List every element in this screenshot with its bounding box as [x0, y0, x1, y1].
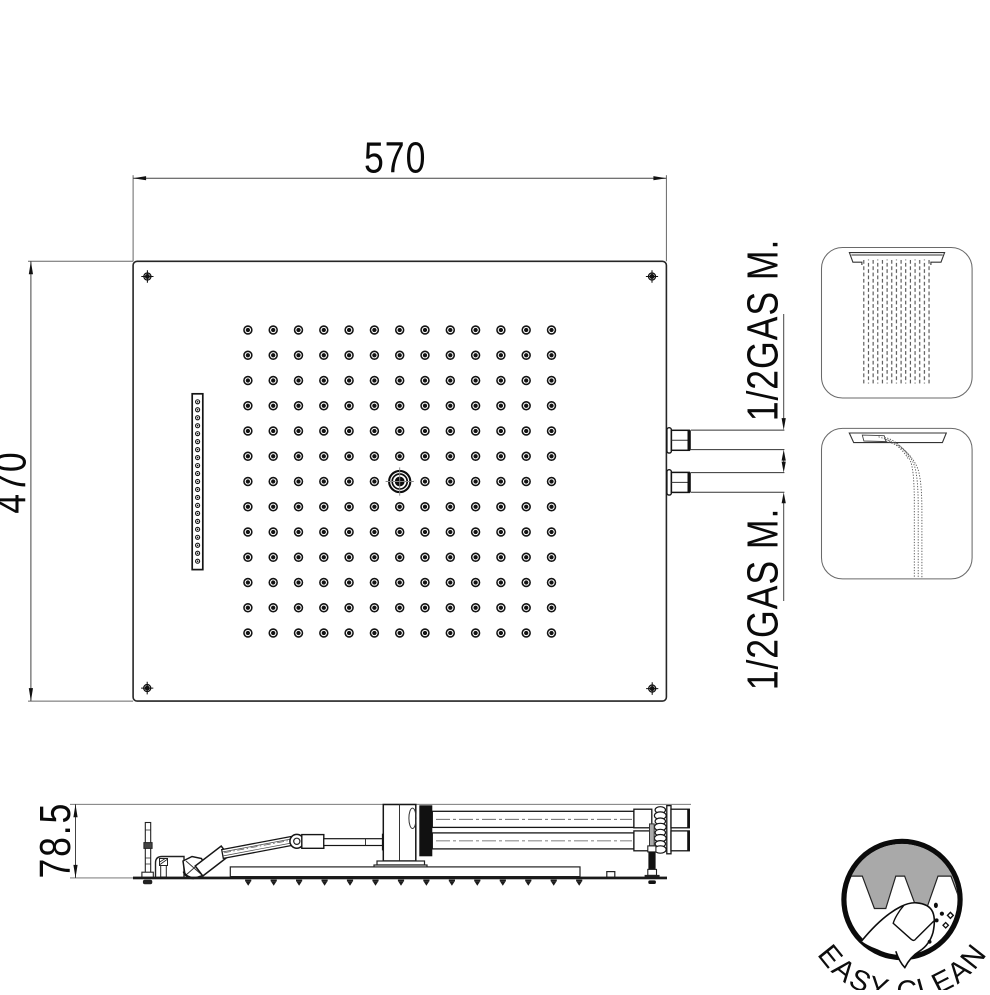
- svg-text:470: 470: [0, 451, 35, 513]
- svg-text:78.5: 78.5: [32, 802, 80, 879]
- svg-text:1/2GAS M.: 1/2GAS M.: [739, 239, 787, 422]
- svg-text:570: 570: [364, 134, 426, 182]
- svg-text:1/2GAS M.: 1/2GAS M.: [739, 508, 787, 691]
